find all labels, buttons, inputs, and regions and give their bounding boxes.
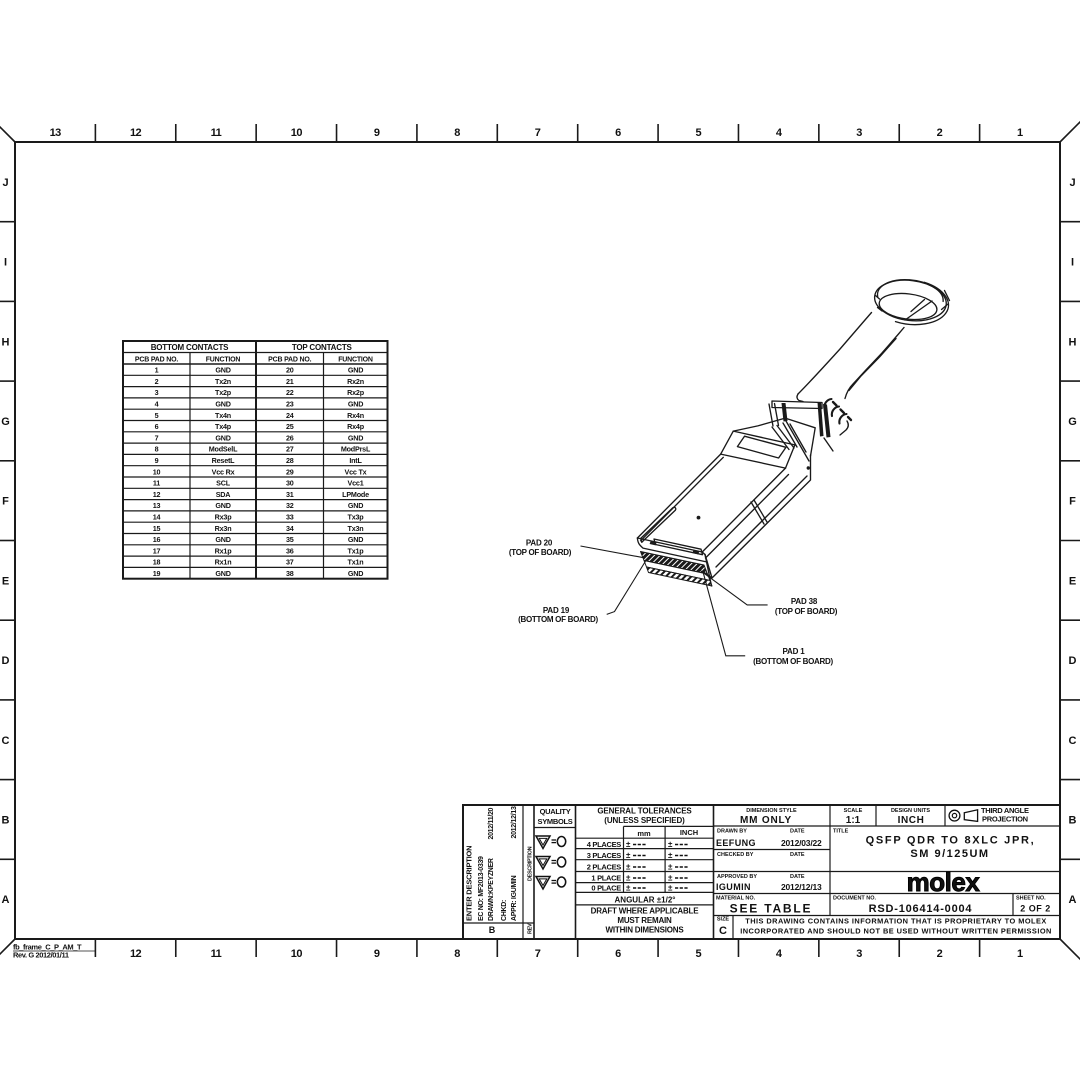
svg-text:(BOTTOM OF BOARD): (BOTTOM OF BOARD): [518, 615, 598, 624]
svg-text:Tx3n: Tx3n: [348, 524, 364, 533]
svg-text:SM 9/125UM: SM 9/125UM: [910, 848, 989, 860]
svg-text:0 PLACE: 0 PLACE: [591, 884, 621, 893]
svg-text:Tx4p: Tx4p: [215, 422, 232, 431]
svg-text:1: 1: [155, 366, 159, 375]
svg-text:18: 18: [153, 558, 161, 567]
svg-text:GND: GND: [215, 535, 230, 544]
svg-text:Rx1n: Rx1n: [215, 558, 232, 567]
svg-text:PAD 20: PAD 20: [526, 539, 553, 548]
svg-text:RSD-106414-0004: RSD-106414-0004: [869, 903, 973, 915]
svg-text:GND: GND: [215, 433, 230, 442]
svg-text:Tx2p: Tx2p: [215, 388, 232, 397]
svg-text:25: 25: [286, 422, 294, 431]
svg-text:H: H: [1069, 336, 1077, 348]
svg-text:35: 35: [286, 535, 294, 544]
svg-text:3: 3: [155, 388, 159, 397]
svg-text:9: 9: [374, 127, 380, 139]
svg-text:DRAWN BY: DRAWN BY: [717, 829, 747, 835]
svg-text:30: 30: [286, 479, 294, 488]
svg-text:mm: mm: [637, 829, 651, 838]
svg-text:20: 20: [286, 366, 294, 375]
svg-text:Rx3n: Rx3n: [215, 524, 232, 533]
svg-text:±: ±: [626, 863, 631, 872]
svg-text:2: 2: [937, 948, 943, 960]
svg-text:TOP CONTACTS: TOP CONTACTS: [292, 343, 353, 352]
svg-text:(TOP OF BOARD): (TOP OF BOARD): [509, 548, 572, 557]
svg-text:ANGULAR ±1/2°: ANGULAR ±1/2°: [615, 896, 676, 905]
svg-text:B: B: [2, 814, 10, 826]
svg-text:±: ±: [668, 851, 673, 860]
svg-text:12: 12: [153, 490, 161, 499]
svg-text:D: D: [2, 655, 10, 667]
svg-text:7: 7: [155, 433, 159, 442]
svg-text:Rx4p: Rx4p: [347, 422, 365, 431]
svg-text:Tx1p: Tx1p: [348, 546, 365, 555]
svg-text:THIS DRAWING CONTAINS INFORMAT: THIS DRAWING CONTAINS INFORMATION THAT I…: [745, 917, 1047, 926]
svg-text:4 PLACES: 4 PLACES: [587, 840, 622, 849]
svg-text:10: 10: [291, 948, 303, 960]
svg-text:SHEET NO.: SHEET NO.: [1016, 896, 1046, 902]
svg-text:Rx3p: Rx3p: [215, 513, 233, 522]
svg-text:DIMENSION STYLE: DIMENSION STYLE: [746, 808, 797, 814]
svg-text:GND: GND: [348, 433, 363, 442]
svg-text:ENTER DESCRIPTION: ENTER DESCRIPTION: [465, 846, 474, 921]
svg-text:±: ±: [626, 840, 631, 849]
svg-text:I: I: [4, 257, 7, 269]
svg-text:23: 23: [286, 400, 294, 409]
svg-text:SCALE: SCALE: [844, 808, 863, 814]
svg-text:2: 2: [937, 127, 943, 139]
svg-text:ModPrsL: ModPrsL: [341, 445, 371, 454]
svg-text:(UNLESS SPECIFIED): (UNLESS SPECIFIED): [604, 816, 685, 825]
svg-text:PAD 19: PAD 19: [543, 606, 570, 615]
svg-text:6: 6: [615, 948, 621, 960]
svg-text:H: H: [2, 336, 10, 348]
svg-text:IntL: IntL: [349, 456, 362, 465]
svg-text:GENERAL TOLERANCES: GENERAL TOLERANCES: [597, 807, 692, 816]
svg-text:11: 11: [211, 127, 222, 139]
svg-text:32: 32: [286, 501, 294, 510]
svg-text:EC NO: MF2013-0339: EC NO: MF2013-0339: [478, 856, 485, 921]
svg-text:8: 8: [454, 127, 460, 139]
svg-text:17: 17: [153, 546, 161, 555]
svg-text:DATE: DATE: [790, 829, 805, 835]
svg-text:DATE: DATE: [790, 852, 805, 858]
svg-text:GND: GND: [215, 366, 230, 375]
svg-text:8: 8: [454, 948, 460, 960]
svg-text:GND: GND: [215, 569, 230, 578]
svg-text:PAD 38: PAD 38: [791, 597, 818, 606]
svg-text:10: 10: [153, 467, 161, 476]
svg-text:QUALITY: QUALITY: [540, 807, 571, 816]
svg-text:1 PLACE: 1 PLACE: [591, 874, 621, 883]
svg-text:2 PLACES: 2 PLACES: [587, 863, 622, 872]
svg-text:C: C: [1069, 735, 1077, 747]
svg-text:DESIGN UNITS: DESIGN UNITS: [891, 808, 930, 814]
svg-text:C: C: [719, 925, 727, 937]
svg-text:Tx3p: Tx3p: [348, 513, 365, 522]
svg-text:MM ONLY: MM ONLY: [740, 815, 792, 826]
svg-text:I: I: [1071, 257, 1074, 269]
svg-text:37: 37: [286, 558, 294, 567]
svg-text:9: 9: [155, 456, 159, 465]
svg-text:2012/12/13: 2012/12/13: [511, 806, 518, 838]
svg-text:Vcc Tx: Vcc Tx: [345, 467, 367, 476]
svg-text:DRAWN:KPEYZNER: DRAWN:KPEYZNER: [488, 858, 495, 921]
svg-text:MUST REMAIN: MUST REMAIN: [617, 916, 672, 925]
svg-text:C: C: [2, 735, 10, 747]
svg-text:E: E: [2, 575, 9, 587]
svg-text:28: 28: [286, 456, 294, 465]
svg-text:Vcc Rx: Vcc Rx: [212, 467, 235, 476]
svg-text:21: 21: [286, 377, 294, 386]
svg-text:29: 29: [286, 467, 294, 476]
svg-text:15: 15: [153, 524, 161, 533]
svg-text:12: 12: [130, 948, 142, 960]
svg-text:molex: molex: [907, 867, 981, 897]
svg-text:BOTTOM CONTACTS: BOTTOM CONTACTS: [151, 343, 229, 352]
svg-text:WITHIN DIMENSIONS: WITHIN DIMENSIONS: [606, 926, 685, 935]
svg-text:12: 12: [130, 127, 142, 139]
svg-text:D: D: [1069, 655, 1077, 667]
svg-text:2 OF 2: 2 OF 2: [1020, 904, 1051, 914]
svg-text:B: B: [489, 925, 496, 935]
svg-text:26: 26: [286, 433, 294, 442]
svg-text:Rx2p: Rx2p: [347, 388, 365, 397]
svg-text:1:1: 1:1: [846, 815, 861, 826]
svg-text:INCH: INCH: [680, 828, 698, 837]
svg-text:Tx1n: Tx1n: [348, 558, 364, 567]
svg-text:PAD 1: PAD 1: [783, 647, 806, 656]
svg-text:34: 34: [286, 524, 294, 533]
svg-text:Rx2n: Rx2n: [347, 377, 364, 386]
svg-text:FUNCTION: FUNCTION: [338, 357, 373, 364]
svg-text:3: 3: [856, 127, 862, 139]
svg-text:GND: GND: [215, 400, 230, 409]
svg-text:±: ±: [626, 851, 631, 860]
svg-text:GND: GND: [215, 501, 230, 510]
svg-text:SDA: SDA: [216, 490, 231, 499]
svg-text:SEE TABLE: SEE TABLE: [730, 902, 813, 916]
svg-text:2012/11/20: 2012/11/20: [488, 807, 495, 839]
svg-text:1: 1: [1017, 948, 1023, 960]
svg-text:ModSelL: ModSelL: [209, 445, 238, 454]
svg-text:38: 38: [286, 569, 294, 578]
svg-text:Rx4n: Rx4n: [347, 411, 364, 420]
svg-text:9: 9: [374, 948, 380, 960]
svg-text:4: 4: [155, 400, 159, 409]
svg-text:6: 6: [155, 422, 159, 431]
svg-text:±: ±: [668, 840, 673, 849]
svg-text:2: 2: [155, 377, 159, 386]
svg-text:6: 6: [615, 127, 621, 139]
svg-text:8: 8: [155, 445, 159, 454]
svg-text:INCH: INCH: [898, 815, 925, 826]
svg-text:(TOP OF BOARD): (TOP OF BOARD): [775, 607, 838, 616]
svg-text:J: J: [1069, 177, 1075, 189]
svg-text:G: G: [1, 416, 10, 428]
svg-text:B: B: [1069, 814, 1077, 826]
svg-text:APPR: IGUMIN: APPR: IGUMIN: [511, 875, 518, 921]
svg-text:PCB PAD NO.: PCB PAD NO.: [268, 357, 311, 364]
svg-text:33: 33: [286, 513, 294, 522]
svg-text:CHECKED BY: CHECKED BY: [717, 852, 754, 858]
svg-text:5: 5: [695, 127, 701, 139]
svg-text:E: E: [1069, 575, 1076, 587]
svg-text:±: ±: [668, 884, 673, 893]
svg-text:PROJECTION: PROJECTION: [982, 815, 1028, 824]
svg-text:GND: GND: [348, 366, 363, 375]
svg-text:LPMode: LPMode: [342, 490, 369, 499]
svg-text:INCORPORATED AND SHOULD NOT BE: INCORPORATED AND SHOULD NOT BE USED WITH…: [740, 927, 1052, 936]
svg-text:Tx4n: Tx4n: [215, 411, 231, 420]
svg-text:24: 24: [286, 411, 294, 420]
svg-text:11: 11: [153, 479, 160, 488]
svg-text:DOCUMENT NO.: DOCUMENT NO.: [833, 896, 877, 902]
svg-text:±: ±: [626, 874, 631, 883]
svg-text:J: J: [2, 177, 8, 189]
svg-text:DESCRIPTION: DESCRIPTION: [528, 846, 534, 881]
svg-text:CHKD:: CHKD:: [501, 900, 508, 921]
svg-text:3 PLACES: 3 PLACES: [587, 851, 622, 860]
svg-text:SYMBOLS: SYMBOLS: [538, 817, 573, 826]
svg-text:1: 1: [1017, 127, 1023, 139]
svg-text:DRAFT WHERE APPLICABLE: DRAFT WHERE APPLICABLE: [591, 907, 700, 916]
svg-text:FUNCTION: FUNCTION: [206, 357, 241, 364]
svg-text:16: 16: [153, 535, 161, 544]
svg-text:2012/03/22: 2012/03/22: [781, 838, 822, 848]
svg-text:APPROVED BY: APPROVED BY: [717, 874, 757, 880]
svg-text:SCL: SCL: [216, 479, 231, 488]
svg-text:7: 7: [535, 127, 541, 139]
svg-text:GND: GND: [348, 535, 363, 544]
svg-text:3: 3: [856, 948, 862, 960]
svg-text:±: ±: [668, 874, 673, 883]
svg-text:13: 13: [50, 127, 62, 139]
svg-text:EEFUNG: EEFUNG: [716, 838, 756, 848]
svg-text:DATE: DATE: [790, 874, 805, 880]
svg-text:11: 11: [211, 948, 222, 960]
svg-text:GND: GND: [348, 569, 363, 578]
svg-text:G: G: [1068, 416, 1077, 428]
svg-text:F: F: [2, 496, 9, 508]
svg-text:22: 22: [286, 388, 294, 397]
svg-text:IGUMIN: IGUMIN: [716, 882, 751, 892]
svg-text:±: ±: [668, 863, 673, 872]
svg-text:Vcc1: Vcc1: [348, 479, 364, 488]
svg-text:A: A: [2, 894, 10, 906]
svg-text:F: F: [1069, 496, 1076, 508]
svg-text:13: 13: [153, 501, 161, 510]
svg-text:REV: REV: [528, 923, 534, 934]
svg-text:7: 7: [535, 948, 541, 960]
svg-text:SIZE: SIZE: [717, 917, 730, 923]
svg-text:2012/12/13: 2012/12/13: [781, 882, 822, 892]
svg-text:A: A: [1069, 894, 1077, 906]
svg-text:QSFP QDR TO 8XLC JPR,: QSFP QDR TO 8XLC JPR,: [866, 835, 1036, 847]
svg-text:19: 19: [153, 569, 161, 578]
svg-text:PCB PAD NO.: PCB PAD NO.: [135, 357, 178, 364]
svg-text:Rx1p: Rx1p: [215, 546, 233, 555]
svg-text:GND: GND: [348, 501, 363, 510]
svg-text:TITLE: TITLE: [833, 829, 849, 835]
svg-text:Rev. G 2012/01/11: Rev. G 2012/01/11: [13, 951, 69, 960]
svg-text:(BOTTOM OF BOARD): (BOTTOM OF BOARD): [753, 657, 833, 666]
svg-text:ResetL: ResetL: [212, 456, 236, 465]
svg-text:10: 10: [291, 127, 303, 139]
svg-text:36: 36: [286, 546, 294, 555]
svg-text:14: 14: [153, 513, 161, 522]
svg-text:±: ±: [626, 884, 631, 893]
svg-text:27: 27: [286, 445, 294, 454]
svg-text:Tx2n: Tx2n: [215, 377, 231, 386]
svg-text:31: 31: [286, 490, 294, 499]
svg-text:GND: GND: [348, 400, 363, 409]
svg-text:5: 5: [695, 948, 701, 960]
svg-text:5: 5: [155, 411, 159, 420]
